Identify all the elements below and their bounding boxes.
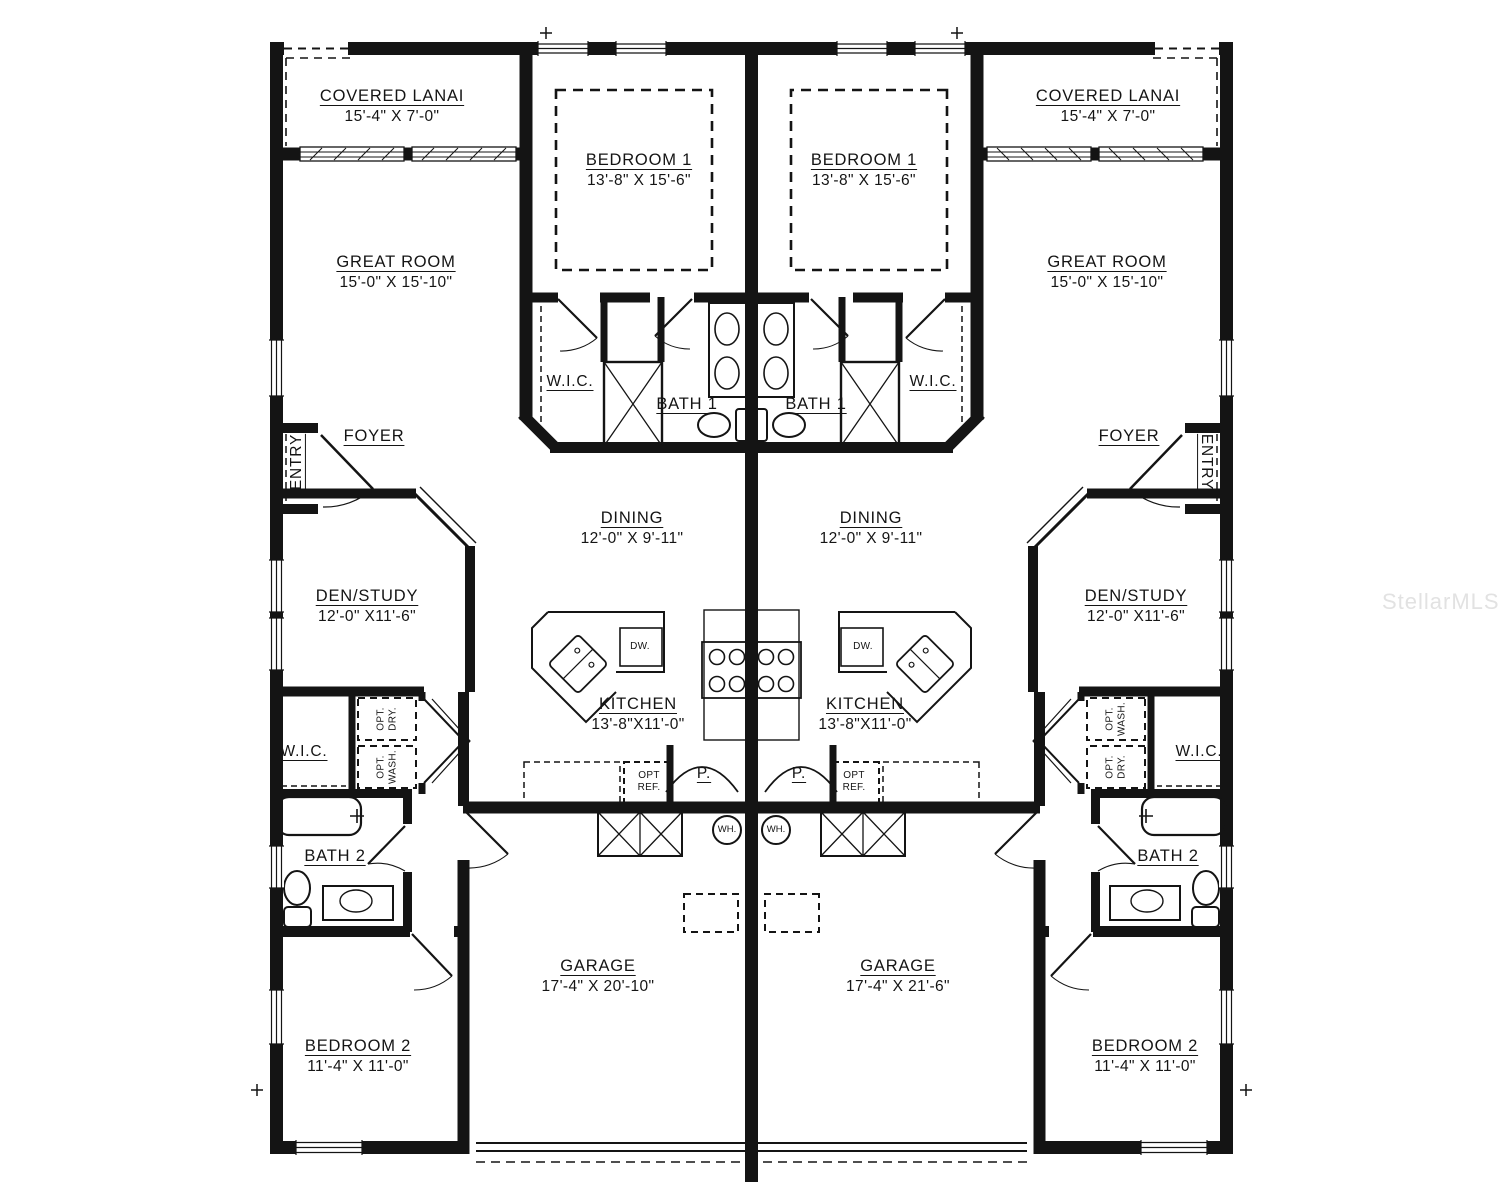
room-dims: 13'-8"X11'-0" [818,715,911,735]
room-label-bath2-right: BATH 2 [1137,846,1198,867]
laundry-line2: WASH. [387,750,399,784]
laundry-line1: OPT. [376,707,388,731]
room-dims: 11'-4" X 11'-0" [305,1057,411,1077]
laundry-line2: DRY. [1116,755,1128,779]
laundry-line1: OPT. [376,750,388,784]
room-name: KITCHEN [818,694,911,715]
opt-ref-line1: OPT [843,770,866,782]
room-label-wic2-right: W.I.C. [1176,742,1223,762]
opt-ref-label-left: OPT REF. [638,770,661,793]
room-label-covered-lanai-left: COVERED LANAI 15'-4" X 7'-0" [320,86,464,128]
room-label-dining-left: DINING 12'-0" X 9'-11" [581,508,684,550]
room-label-entry-right: ENTRY [1196,434,1216,490]
laundry-top-label-right: OPT. WASH. [1105,702,1128,736]
room-name: DEN/STUDY [1085,586,1188,607]
room-name: DINING [581,508,684,529]
laundry-line1: OPT. [1105,755,1117,779]
room-label-foyer-right: FOYER [1099,426,1160,447]
laundry-bottom-label-left: OPT. WASH. [376,750,399,784]
room-dims: 11'-4" X 11'-0" [1092,1057,1198,1077]
room-dims: 15'-4" X 7'-0" [1036,107,1180,127]
room-dims: 17'-4" X 21'-6" [846,977,950,997]
room-name: DINING [820,508,923,529]
room-label-wic-bath1-right: W.I.C. [910,372,957,392]
room-label-entry-left: ENTRY [287,434,307,490]
room-label-covered-lanai-right: COVERED LANAI 15'-4" X 7'-0" [1036,86,1180,128]
room-label-den-study-left: DEN/STUDY 12'-0" X11'-6" [316,586,419,628]
room-name: BEDROOM 2 [305,1036,411,1057]
pantry-label-right: P. [792,764,806,784]
room-label-kitchen-left: KITCHEN 13'-8"X11'-0" [591,694,684,736]
laundry-top-label-left: OPT. DRY. [376,707,399,731]
room-dims: 12'-0" X11'-6" [316,607,419,627]
room-label-great-room-left: GREAT ROOM 15'-0" X 15'-10" [336,252,455,294]
laundry-bottom-label-right: OPT. DRY. [1105,755,1128,779]
room-dims: 12'-0" X 9'-11" [820,529,923,549]
room-label-foyer-left: FOYER [344,426,405,447]
laundry-line2: WASH. [1116,702,1128,736]
room-dims: 13'-8"X11'-0" [591,715,684,735]
room-label-great-room-right: GREAT ROOM 15'-0" X 15'-10" [1047,252,1166,294]
room-dims: 15'-4" X 7'-0" [320,107,464,127]
room-label-dining-right: DINING 12'-0" X 9'-11" [820,508,923,550]
room-name: BEDROOM 1 [811,150,917,171]
room-dims: 12'-0" X11'-6" [1085,607,1188,627]
room-label-garage-left: GARAGE 17'-4" X 20'-10" [542,956,655,998]
opt-ref-line1: OPT [638,770,661,782]
room-name: GREAT ROOM [1047,252,1166,273]
room-label-garage-right: GARAGE 17'-4" X 21'-6" [846,956,950,998]
room-name: BEDROOM 2 [1092,1036,1198,1057]
room-dims: 17'-4" X 20'-10" [542,977,655,997]
pantry-label-left: P. [697,764,711,784]
dishwasher-label-left: DW. [630,641,650,653]
room-name: GARAGE [542,956,655,977]
room-name: BEDROOM 1 [586,150,692,171]
room-name: GARAGE [846,956,950,977]
room-dims: 12'-0" X 9'-11" [581,529,684,549]
laundry-line2: DRY. [387,707,399,731]
opt-ref-label-right: OPT REF. [843,770,866,793]
room-label-bedroom2-left: BEDROOM 2 11'-4" X 11'-0" [305,1036,411,1078]
room-dims: 13'-8" X 15'-6" [586,171,692,191]
opt-ref-line2: REF. [843,782,866,794]
stellar-mls-watermark: StellarMLS [1382,588,1500,617]
room-dims: 15'-0" X 15'-10" [1047,273,1166,293]
room-label-kitchen-right: KITCHEN 13'-8"X11'-0" [818,694,911,736]
room-label-bath2-left: BATH 2 [304,846,365,867]
room-label-bedroom1-right: BEDROOM 1 13'-8" X 15'-6" [811,150,917,192]
room-name: COVERED LANAI [320,86,464,107]
room-name: COVERED LANAI [1036,86,1180,107]
room-label-bedroom1-left: BEDROOM 1 13'-8" X 15'-6" [586,150,692,192]
room-label-bedroom2-right: BEDROOM 2 11'-4" X 11'-0" [1092,1036,1198,1078]
room-label-bath1-right: BATH 1 [785,394,846,415]
room-dims: 15'-0" X 15'-10" [336,273,455,293]
room-label-wic-bath1-left: W.I.C. [547,372,594,392]
floorplan-linework [0,0,1501,1200]
floorplan-page: COVERED LANAI 15'-4" X 7'-0" BEDROOM 1 1… [0,0,1501,1200]
water-heater-label-left: WH. [718,824,736,836]
room-label-den-study-right: DEN/STUDY 12'-0" X11'-6" [1085,586,1188,628]
room-name: DEN/STUDY [316,586,419,607]
room-name: GREAT ROOM [336,252,455,273]
room-label-bath1-left: BATH 1 [656,394,717,415]
room-dims: 13'-8" X 15'-6" [811,171,917,191]
water-heater-label-right: WH. [767,824,785,836]
dishwasher-label-right: DW. [853,641,873,653]
laundry-line1: OPT. [1105,702,1117,736]
room-name: KITCHEN [591,694,684,715]
opt-ref-line2: REF. [638,782,661,794]
room-label-wic2-left: W.I.C. [281,742,328,762]
